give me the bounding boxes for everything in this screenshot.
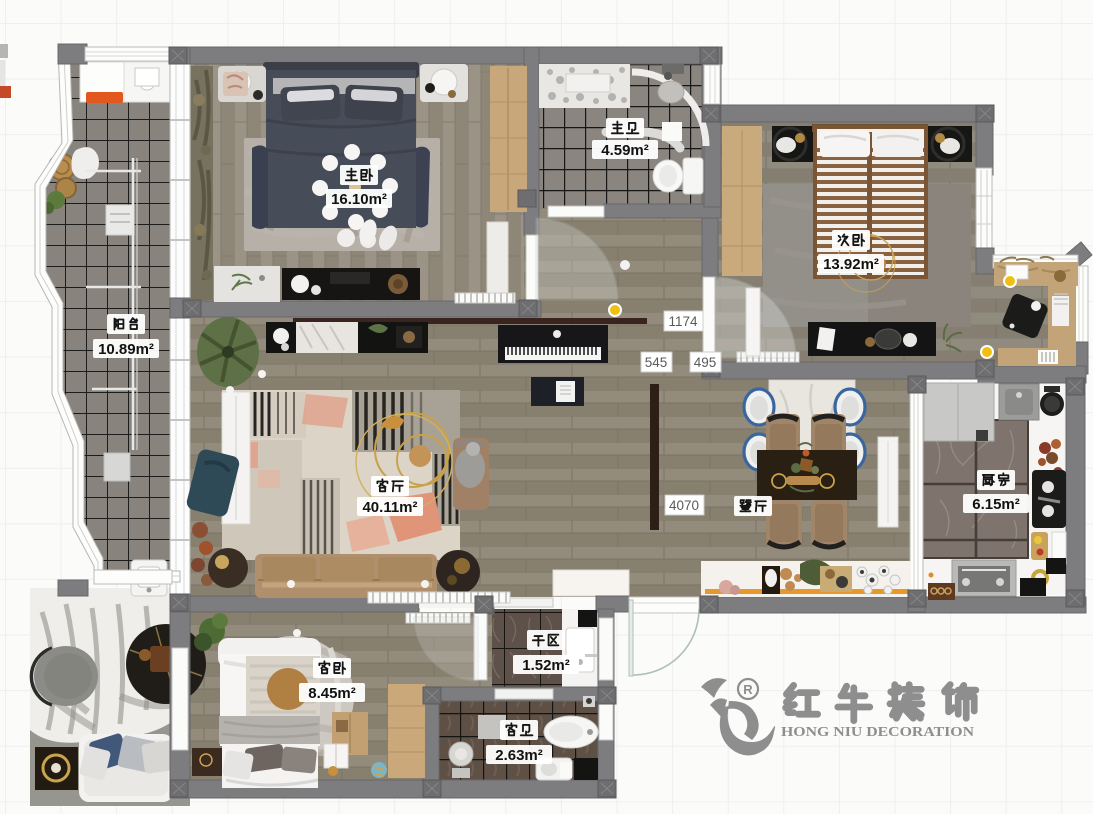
svg-text:8.45m²: 8.45m² [308,685,356,702]
svg-text:4.59m²: 4.59m² [601,142,649,159]
svg-text:6.15m²: 6.15m² [972,496,1020,513]
svg-text:40.11m²: 40.11m² [362,499,417,516]
svg-text:16.10m²: 16.10m² [331,191,387,208]
svg-text:R: R [743,682,753,697]
svg-text:13.92m²: 13.92m² [823,256,879,273]
svg-text:1174: 1174 [668,314,698,329]
svg-text:495: 495 [694,355,717,370]
svg-text:545: 545 [645,355,668,370]
svg-text:HONG NIU DECORATION: HONG NIU DECORATION [781,725,974,740]
svg-text:4070: 4070 [669,498,699,513]
svg-text:1.52m²: 1.52m² [522,657,570,674]
svg-text:10.89m²: 10.89m² [98,341,154,358]
svg-text:2.63m²: 2.63m² [495,747,543,764]
